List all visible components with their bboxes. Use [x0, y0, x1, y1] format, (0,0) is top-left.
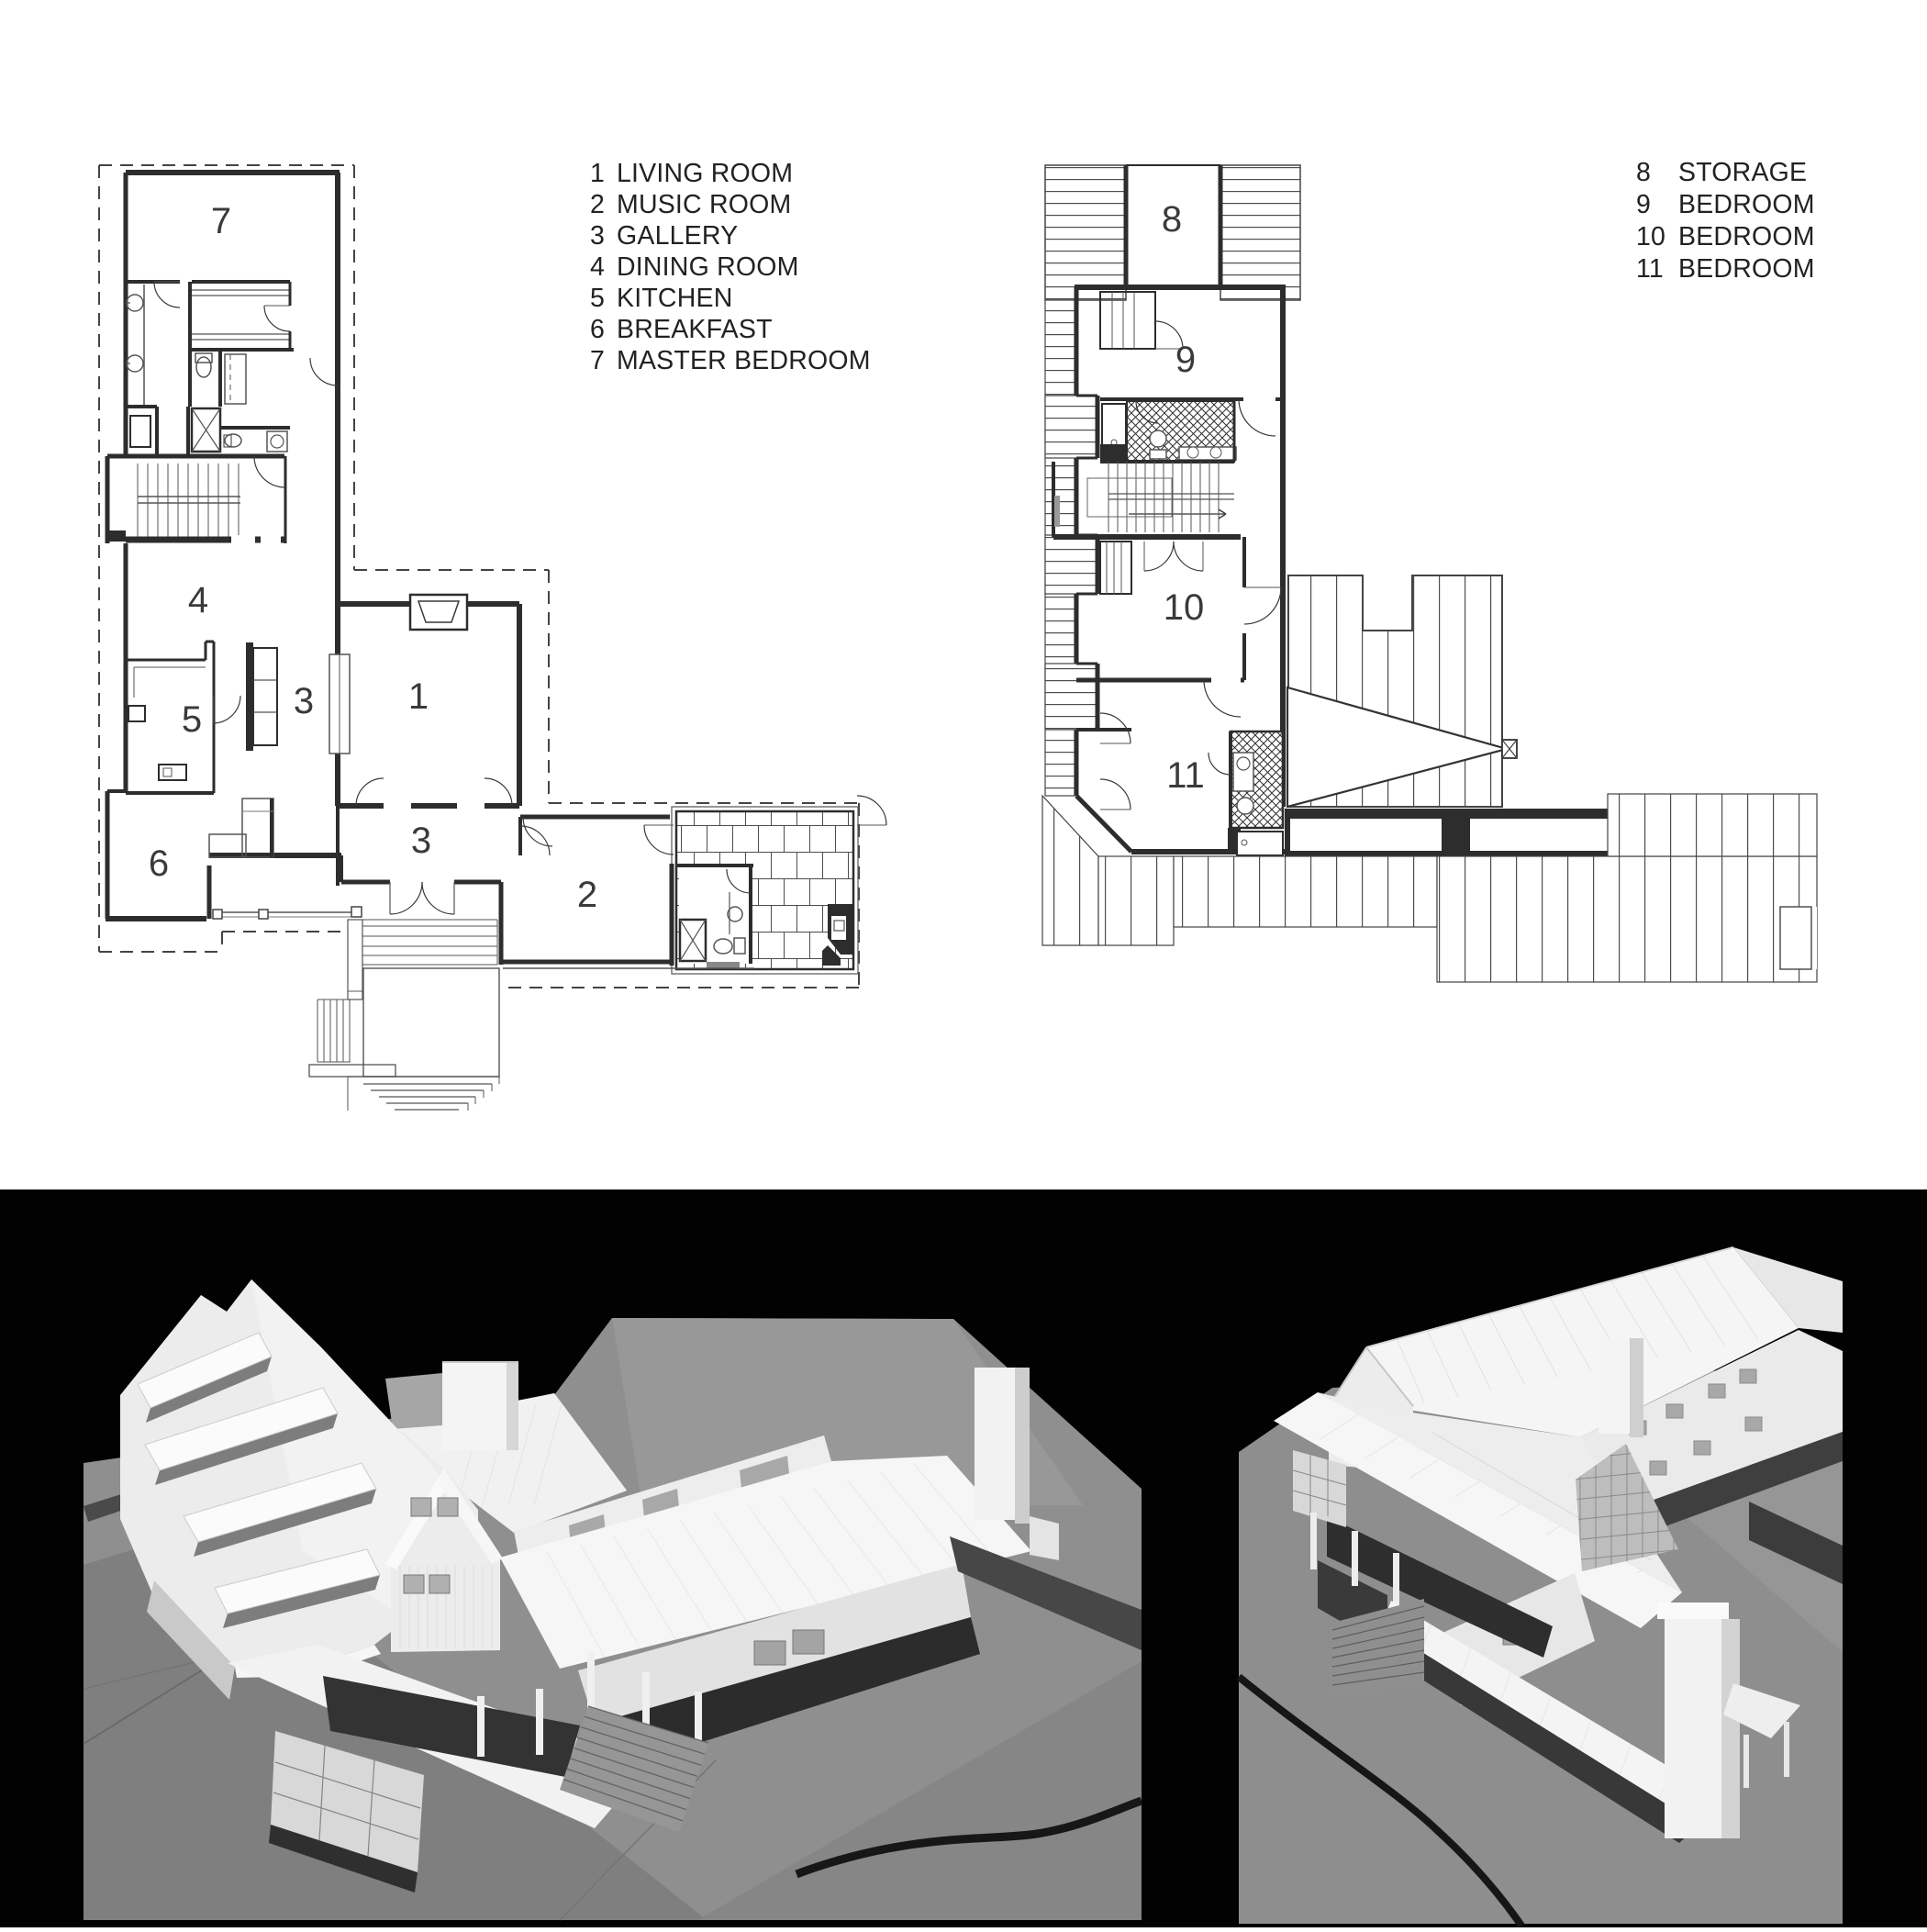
svg-text:GALLERY: GALLERY: [617, 221, 738, 251]
svg-text:1: 1: [590, 159, 605, 188]
svg-text:2: 2: [577, 875, 597, 915]
svg-text:8: 8: [1162, 199, 1182, 240]
svg-text:9: 9: [1175, 340, 1196, 380]
svg-text:BEDROOM: BEDROOM: [1678, 222, 1815, 251]
svg-text:10: 10: [1164, 587, 1205, 628]
svg-text:DINING ROOM: DINING ROOM: [617, 252, 799, 282]
svg-text:7: 7: [211, 201, 231, 241]
svg-text:3: 3: [411, 821, 431, 861]
svg-text:KITCHEN: KITCHEN: [617, 284, 733, 313]
svg-text:BREAKFAST: BREAKFAST: [617, 315, 773, 344]
svg-text:6: 6: [590, 315, 605, 344]
svg-text:10: 10: [1636, 222, 1665, 251]
svg-text:4: 4: [188, 580, 208, 620]
svg-text:3: 3: [294, 681, 314, 721]
svg-text:4: 4: [590, 252, 605, 282]
svg-text:11: 11: [1636, 254, 1664, 284]
svg-text:MUSIC ROOM: MUSIC ROOM: [617, 190, 791, 219]
svg-text:MASTER BEDROOM: MASTER BEDROOM: [617, 346, 871, 375]
svg-text:6: 6: [149, 843, 169, 884]
svg-text:STORAGE: STORAGE: [1678, 158, 1807, 187]
svg-text:BEDROOM: BEDROOM: [1678, 254, 1815, 284]
svg-text:7: 7: [590, 346, 605, 375]
svg-text:3: 3: [590, 221, 605, 251]
svg-text:9: 9: [1636, 190, 1651, 219]
svg-text:8: 8: [1636, 158, 1651, 187]
svg-text:1: 1: [408, 676, 429, 717]
svg-text:LIVING ROOM: LIVING ROOM: [617, 159, 793, 188]
svg-text:2: 2: [590, 190, 605, 219]
svg-text:11: 11: [1166, 755, 1205, 796]
svg-text:BEDROOM: BEDROOM: [1678, 190, 1815, 219]
svg-text:5: 5: [182, 699, 202, 740]
svg-text:5: 5: [590, 284, 605, 313]
